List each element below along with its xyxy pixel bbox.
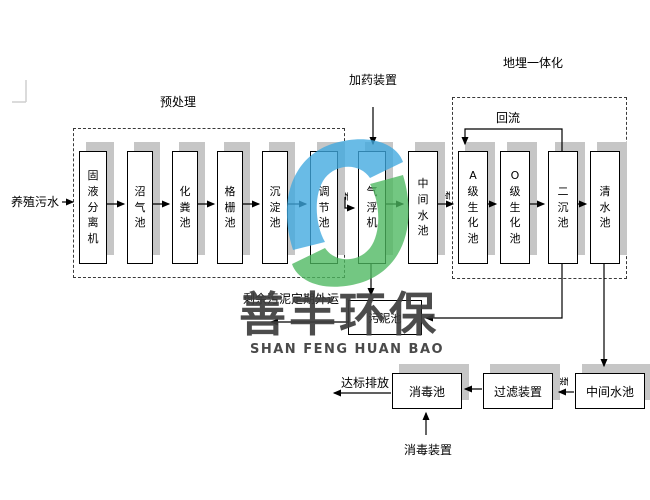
box-a-bio-pool: A级生化池 [458,151,488,264]
pump-label-3: 泵 [557,377,572,387]
pump-label-2: 泵 [439,191,454,201]
pretreatment-label: 预处理 [160,93,196,110]
box-sedimentation-pool: 沉淀池 [262,151,288,264]
box-air-flotation-machine: 气浮机 [358,151,386,264]
box-grid-pool: 格栅池 [217,151,243,264]
box-intermediate-pool-bottom: 中间水池 [575,373,645,409]
reflux-label: 回流 [496,109,520,126]
pump-label-1: 泵 [337,192,352,202]
integrated-label: 地埋一体化 [503,54,563,71]
box-clear-water-pool: 清水池 [590,151,620,264]
box-sludge-pool: 污泥池 [348,300,422,335]
box-secondary-sedimentation-pool: 二沉池 [548,151,578,264]
box-septic-tank: 化粪池 [172,151,198,264]
box-o-bio-pool: O级生化池 [500,151,530,264]
input-label: 养殖污水 [11,193,59,210]
dosing-device-label: 加药装置 [349,71,397,88]
box-biogas-pool: 沼气池 [127,151,153,264]
box-filter-device: 过滤装置 [483,373,553,409]
box-disinfection-pool: 消毒池 [392,373,462,409]
sludge-note-label: 剩余污泥定期外运 [243,290,339,307]
box-solid-liquid-separator: 固液分离机 [79,151,107,264]
pretreatment-group-frame [73,128,345,278]
watermark-en: SHAN FENG HUAN BAO [250,342,444,357]
disinfection-device-label: 消毒装置 [404,441,452,458]
box-regulating-pool: 调节池 [310,151,338,264]
discharge-label: 达标排放 [341,374,389,391]
process-flow-diagram: 预处理 地埋一体化 回流 加药装置 养殖污水 剩余污泥定期外运 达标排放 消毒装… [0,0,650,500]
box-intermediate-pool-top: 中间水池 [408,151,438,264]
